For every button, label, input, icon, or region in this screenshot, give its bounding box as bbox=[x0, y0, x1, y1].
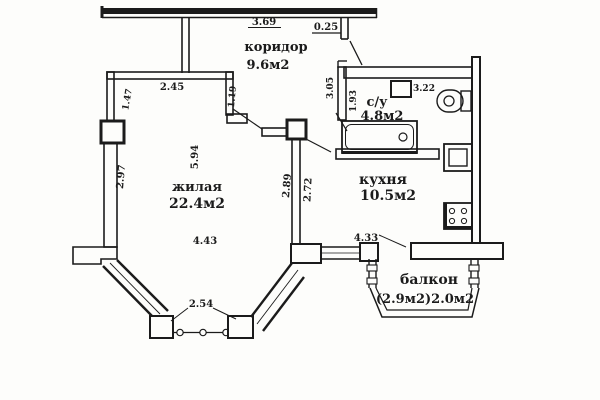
room-label-living: жилая bbox=[172, 180, 222, 195]
left-footing bbox=[73, 247, 117, 264]
room-area-kitchen: 10.5м2 bbox=[360, 188, 416, 204]
dim-bathroom-width: 3.22 bbox=[413, 84, 435, 94]
dim-entry-stub: 0.25 bbox=[314, 22, 338, 33]
living-kitchen-wall bbox=[292, 139, 300, 245]
dim-niche-width: 2.45 bbox=[160, 82, 184, 93]
room-area-balcony: (2.9м2)2.0м2 bbox=[376, 292, 474, 307]
dim-bathroom-height: 3.05 bbox=[326, 77, 336, 99]
dim-living-wall-right: 2.72 bbox=[302, 177, 314, 202]
kitchen-door-swing bbox=[306, 139, 331, 152]
dim-kitchen-window: 4.33 bbox=[354, 233, 378, 244]
toilet-icon bbox=[437, 90, 471, 112]
room-label-bathroom: с/у bbox=[367, 95, 389, 110]
dim-living-height: 5.94 bbox=[190, 145, 201, 169]
window-circle bbox=[177, 329, 183, 335]
kitchen-sink-icon bbox=[444, 144, 472, 171]
bay-window bbox=[73, 243, 378, 338]
room-labels: коридор 9.6м2 с/у 4.8м2 кухня 10.5м2 жил… bbox=[169, 40, 474, 307]
dim-left-wall: 2.97 bbox=[115, 164, 128, 189]
stove-icon bbox=[444, 203, 472, 229]
entry-door-line bbox=[350, 41, 362, 65]
living-door-swing bbox=[233, 109, 262, 129]
bay-left-block bbox=[150, 316, 173, 338]
living-room-walls bbox=[101, 72, 331, 247]
window-circle bbox=[200, 329, 206, 335]
room-area-corridor: 9.6м2 bbox=[247, 58, 290, 73]
dim-bathroom-inner: 1.93 bbox=[349, 90, 359, 112]
window-frame-tick bbox=[367, 265, 377, 271]
balcony-parapet-wall bbox=[411, 243, 503, 259]
window-frame-tick bbox=[367, 278, 377, 284]
window-frame-tick bbox=[469, 278, 479, 284]
dim-niche-left: 1.47 bbox=[121, 88, 135, 111]
dim-bay-width: 4.43 bbox=[193, 236, 217, 247]
left-column bbox=[101, 121, 124, 143]
dim-living-wall-left: 2.89 bbox=[281, 173, 294, 198]
bay-upper-right-block bbox=[291, 244, 321, 263]
right-exterior-wall bbox=[472, 57, 480, 244]
center-column bbox=[287, 120, 306, 139]
bay-right-block bbox=[228, 316, 253, 338]
window-frame-tick bbox=[469, 265, 479, 271]
room-label-balcony: балкон bbox=[400, 272, 458, 288]
room-label-corridor: коридор bbox=[244, 40, 307, 55]
bay-end-block bbox=[360, 243, 378, 261]
room-label-kitchen: кухня bbox=[359, 172, 407, 188]
bathtub-icon bbox=[342, 121, 417, 153]
dim-niche-right: 1.19 bbox=[227, 85, 239, 108]
top-exterior-wall bbox=[102, 6, 377, 18]
entry-stub-wall bbox=[341, 18, 362, 65]
room-area-bathroom: 4.8м2 bbox=[361, 109, 404, 124]
bath-sink-icon bbox=[391, 81, 411, 97]
room-area-living: 22.4м2 bbox=[169, 196, 225, 212]
dim-bay-window: 2.54 bbox=[189, 299, 213, 310]
corridor-divider-wall bbox=[182, 17, 189, 73]
floor-plan: коридор 9.6м2 с/у 4.8м2 кухня 10.5м2 жил… bbox=[0, 0, 600, 400]
door-stub-wall bbox=[262, 128, 288, 136]
dim-top-width: 3.69 bbox=[252, 17, 276, 28]
floor-plan-drawing: коридор 9.6м2 с/у 4.8м2 кухня 10.5м2 жил… bbox=[0, 0, 600, 400]
